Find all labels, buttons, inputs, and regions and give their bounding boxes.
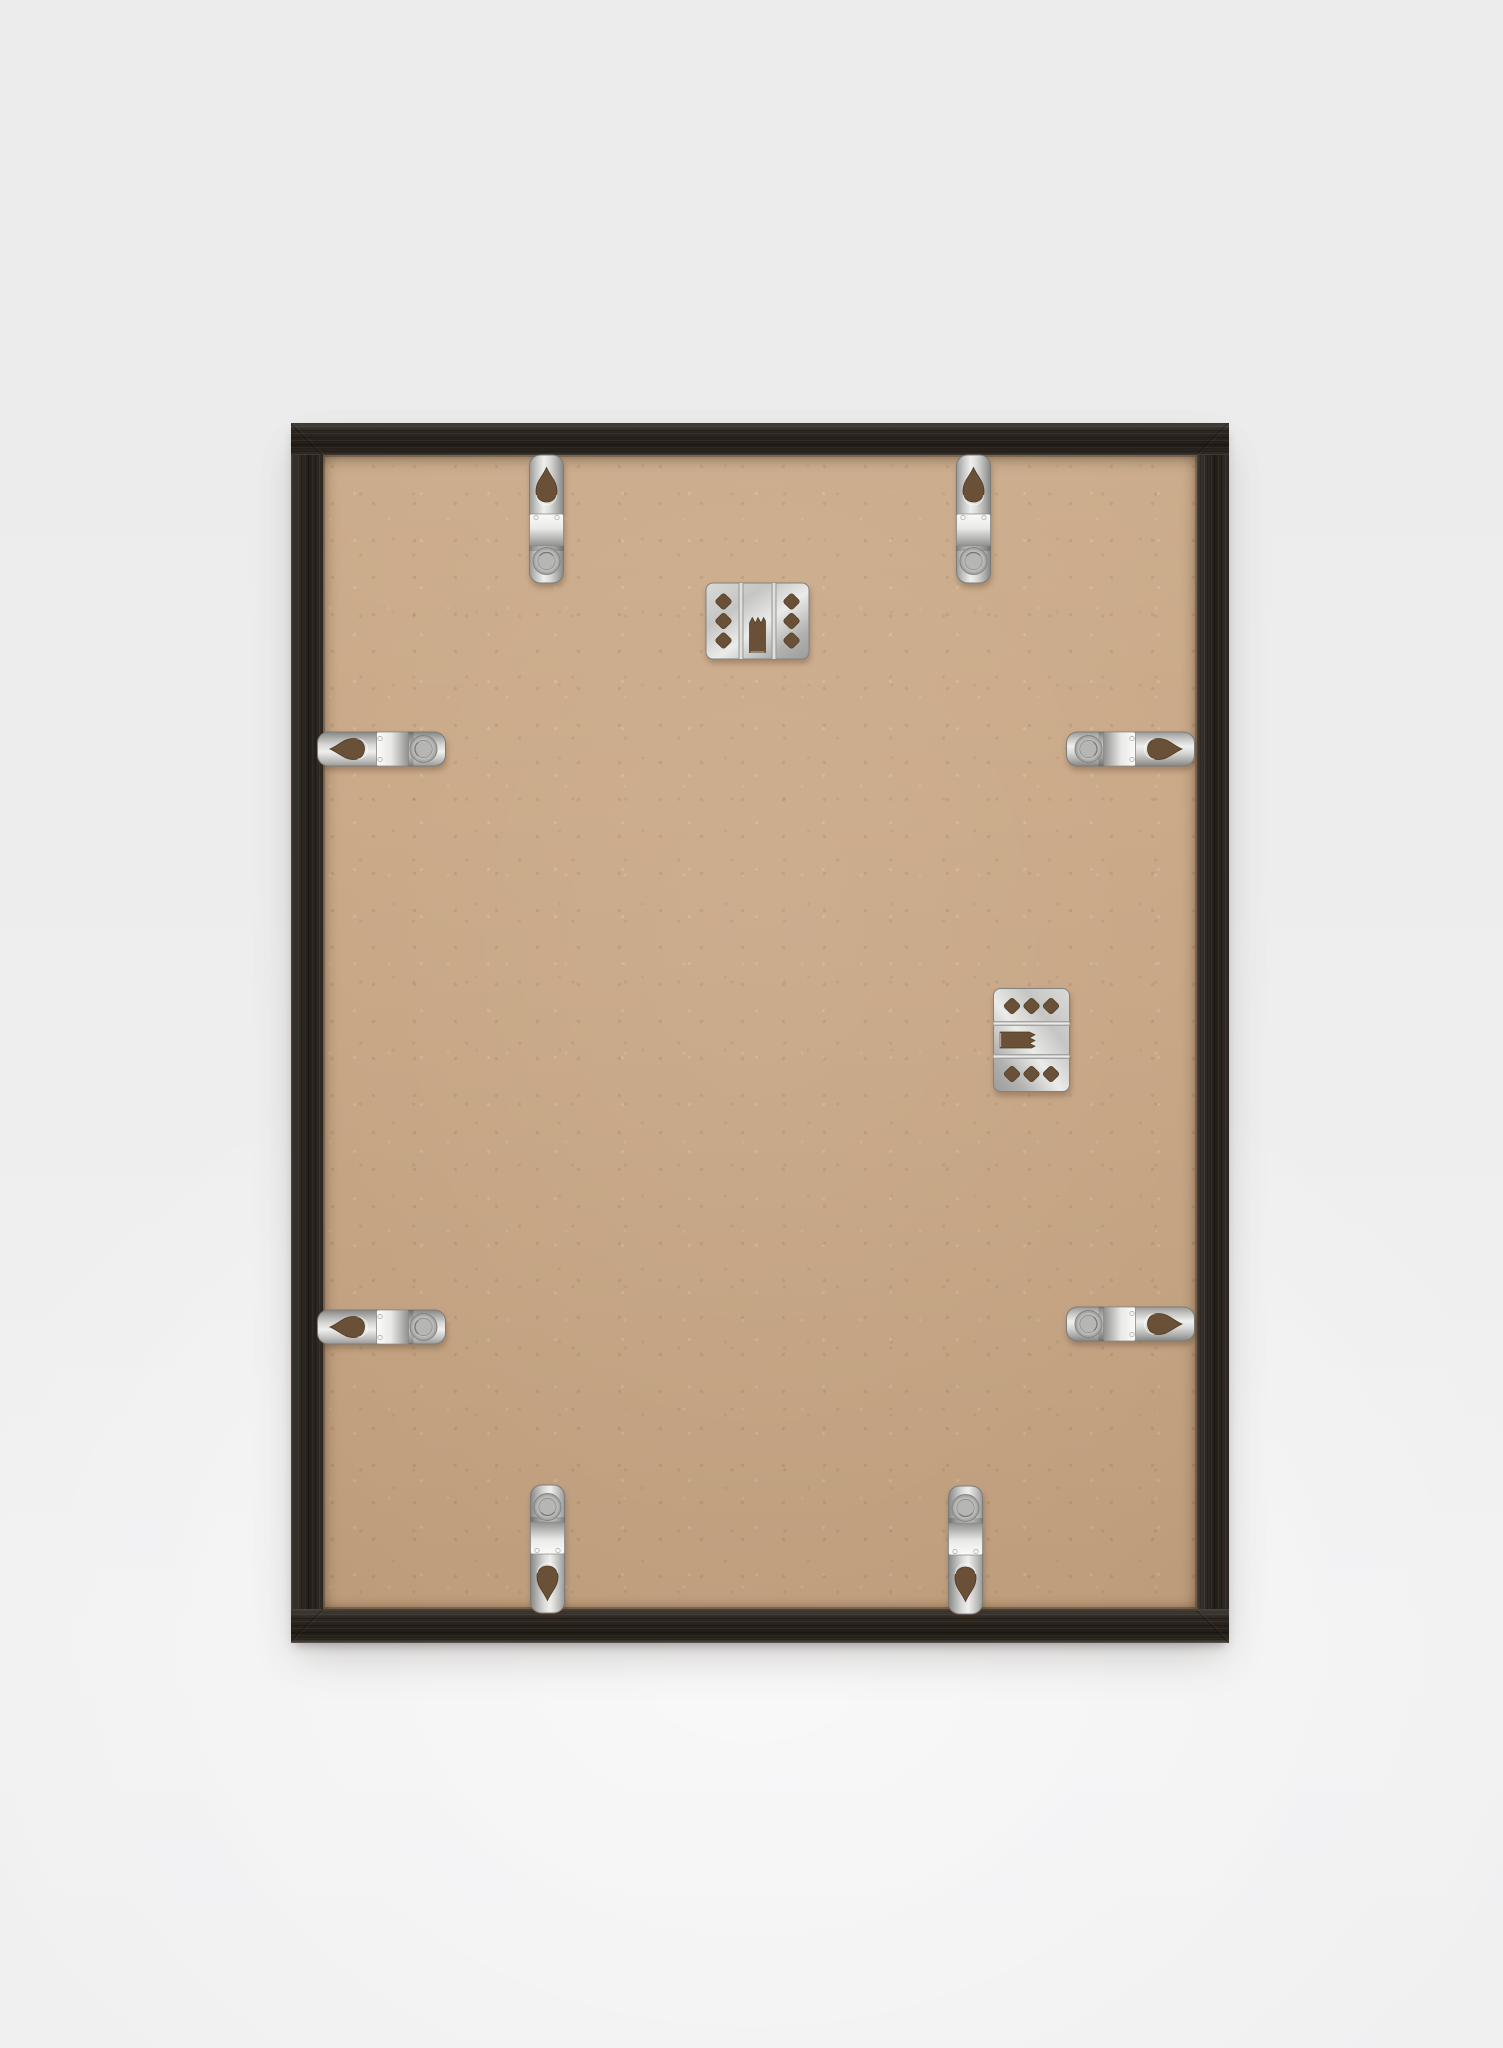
frame-border-bottom <box>291 1609 1229 1643</box>
retainer-clip-top-left <box>528 454 565 584</box>
sawtooth-hanger-portrait <box>705 582 810 660</box>
retainer-clip-top-right <box>955 454 992 584</box>
frame-border-top <box>291 423 1229 455</box>
frame-border-left <box>291 455 323 1609</box>
frame-border-right <box>1197 455 1229 1609</box>
retainer-clip-right-lower <box>1112 1259 1149 1389</box>
sawtooth-hanger-landscape <box>979 1001 1084 1079</box>
studio-backdrop <box>0 0 1503 2048</box>
retainer-clip-right-upper <box>1112 684 1149 814</box>
picture-frame-back <box>291 423 1229 1643</box>
retainer-clip-bottom-left <box>529 1484 566 1614</box>
retainer-clip-left-upper <box>363 684 400 814</box>
retainer-clip-bottom-right <box>947 1485 984 1615</box>
retainer-clip-left-lower <box>363 1262 400 1392</box>
